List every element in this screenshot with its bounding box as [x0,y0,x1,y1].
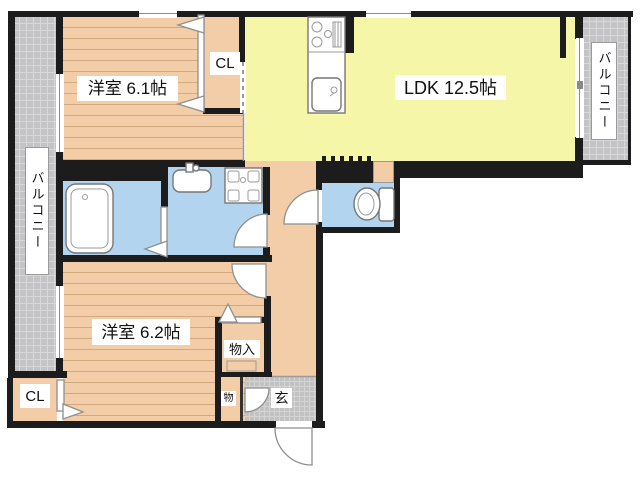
wall [575,11,583,39]
closet1-label: CL [210,52,240,75]
wall [316,222,322,233]
floor-plan: 洋室 6.1帖 LDK 12.5帖 洋室 6.2帖 CL CL 物入 物 玄 バ… [0,0,640,489]
balcony-railing [628,13,631,164]
wall [316,227,400,233]
wall [394,178,400,233]
wall [316,161,373,183]
wall [8,11,633,17]
balcony-left-label: バルコニー [25,147,49,275]
utility-nook-floor [373,161,394,183]
storage-label: 物入 [224,340,260,358]
window [56,286,64,358]
front-door-arc [275,428,312,465]
wall [264,317,271,377]
washroom-floor [166,167,263,255]
wall [56,255,272,262]
bedroom2-label: 洋室 6.2帖 [92,319,190,345]
toilet-floor [322,183,394,227]
window [366,10,411,18]
window [139,10,177,18]
wall [203,108,243,114]
bathroom-floor [63,180,161,255]
wall [394,161,583,178]
front-door-opening [276,421,312,428]
wall [316,183,322,190]
wall [263,167,270,215]
wall [560,11,566,58]
wall [316,233,323,428]
ldk-label: LDK 12.5帖 [395,75,506,100]
wall [215,317,271,323]
balcony-door-window [576,38,584,138]
window [56,74,64,152]
wall [345,11,354,53]
balcony-railing [575,160,631,165]
wall [240,377,243,421]
entrance-label: 玄 [271,388,292,408]
small-storage-label: 物 [221,391,236,406]
wall [215,372,272,377]
wall [8,11,15,378]
bedroom1-label: 洋室 6.1帖 [77,76,178,101]
wall [56,160,245,167]
wall [56,167,166,181]
wall [161,165,168,207]
balcony-right-label: バルコニー [591,42,617,140]
closet2-label: CL [20,384,50,408]
wall [8,371,67,378]
wall [215,317,222,377]
